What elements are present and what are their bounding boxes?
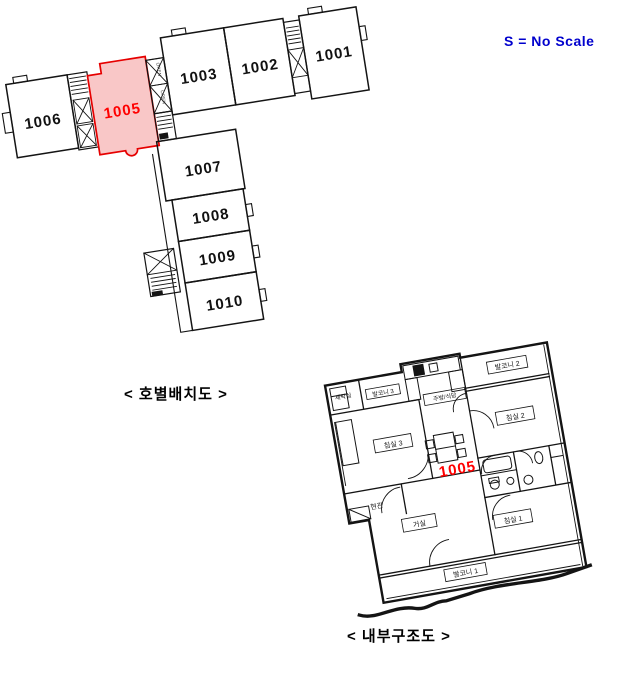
stair-core-icon [284,20,311,94]
unit-1006: 1006 [0,69,79,159]
interior-plan-caption: < 내부구조도 > [347,625,451,646]
unit-1009-label: 1009 [198,247,238,270]
building-plan-caption: < 호별배치도 > [124,383,228,404]
wing-stair-core-icon [144,248,181,296]
open-shaft-label: OPEN [160,90,167,105]
unit-1009: 1009 [178,229,262,283]
unit-1003-label: 1003 [179,65,219,88]
laundry-label: 세탁실 [334,391,352,402]
unit-1008-label: 1008 [191,205,231,228]
living-room-label: 거실 [412,518,426,529]
unit-1010: 1010 [185,271,270,331]
interior-plan: 세탁실 발코니 3 주방/식당 발코니 2 침실 2 침실 3 현관 거실 침실… [318,338,593,619]
unit-1002-label: 1002 [240,56,280,79]
unit-1008: 1008 [172,188,256,242]
floor-plan-page: S = No Scale 1006 10 [0,0,619,700]
interior-unit-number: 1005 [438,458,478,481]
shoe-cabinet [349,506,371,522]
entrance-label: 현관 [370,500,385,511]
building-plan: 1006 1005 OPEN [0,0,408,355]
unit-1001: 1001 [298,0,375,99]
unit-1001-label: 1001 [314,43,354,66]
unit-1007-label: 1007 [184,158,224,181]
unit-1006-label: 1006 [23,110,63,133]
open-shaft-label: OPEN [155,62,162,77]
unit-1010-label: 1010 [205,292,245,315]
plans-canvas: 1006 1005 OPEN [0,0,619,700]
unit-1005-highlighted: 1005 [86,56,160,160]
